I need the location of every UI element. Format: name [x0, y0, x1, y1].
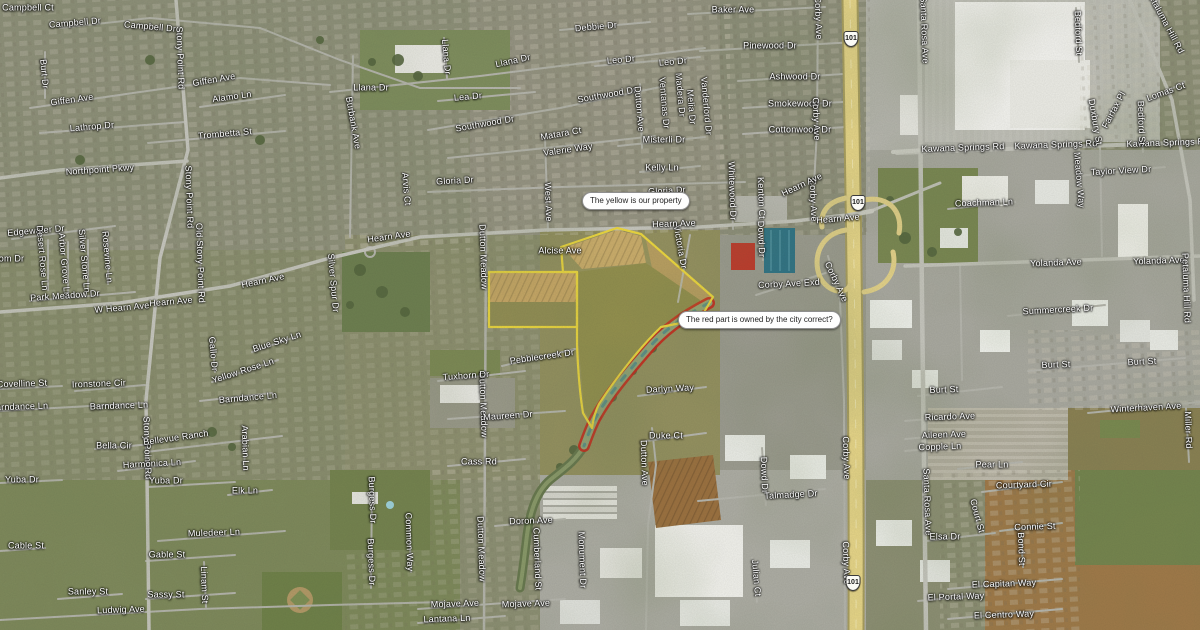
satellite-map[interactable]: Campbell CtCampbell DrCampbell DrStony P… [0, 0, 1200, 630]
map-canvas [0, 0, 1200, 630]
annotation-callout[interactable]: The red part is owned by the city correc… [678, 311, 841, 329]
grain-overlay [0, 0, 1200, 630]
annotation-callout[interactable]: The yellow is our property [582, 192, 690, 210]
